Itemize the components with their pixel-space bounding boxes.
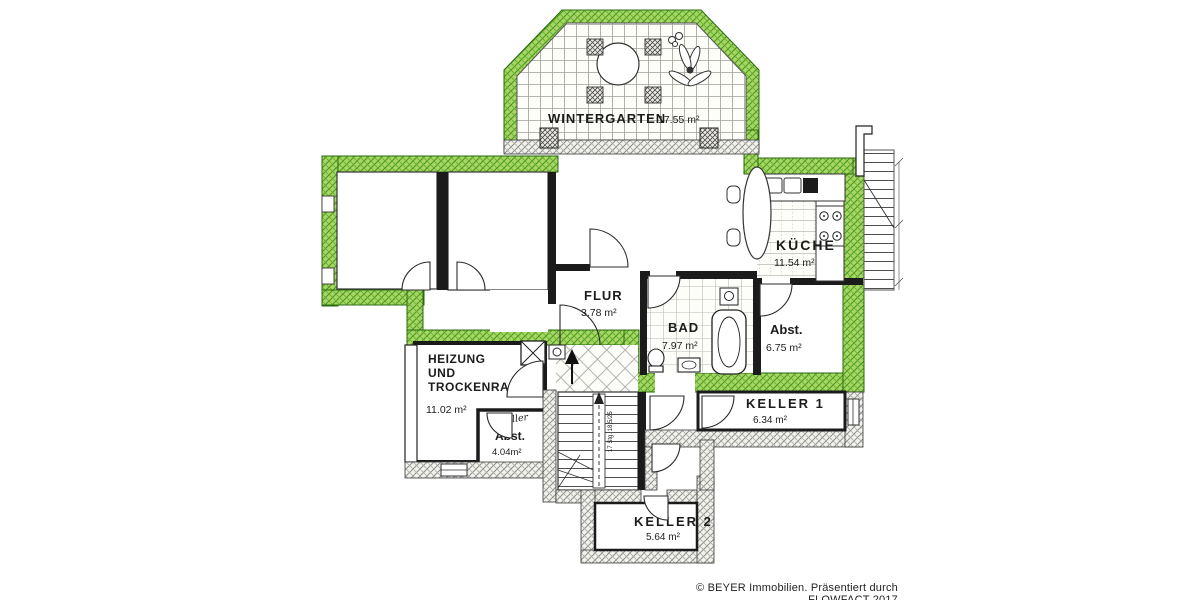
- door-corridor: [652, 444, 680, 472]
- window-notch: [322, 268, 334, 284]
- bad-area: 7.97 m²: [662, 340, 698, 352]
- door-living: [590, 229, 628, 267]
- room-right-wall: [548, 172, 556, 304]
- keller-abst-area: 4.04m²: [492, 447, 522, 458]
- flur-room: FLUR 3.78 m²: [556, 264, 623, 319]
- partition-wall: [437, 172, 448, 290]
- bad-label: BAD: [668, 320, 699, 335]
- door-abst: [760, 284, 792, 316]
- room-top-left: [322, 172, 556, 332]
- flur-top-wall: [556, 264, 590, 271]
- hall-floor: [556, 345, 638, 392]
- keller1-area: 6.34 m²: [753, 415, 788, 426]
- stair-annotation: 17 Stg. 18,5/25: [608, 411, 614, 452]
- drain-icon: [549, 345, 565, 359]
- sink-icon: [678, 358, 700, 372]
- abst-area: 6.75 m²: [766, 342, 802, 354]
- kueche-area: 11.54 m²: [774, 257, 815, 269]
- keller1-label: KELLER 1: [746, 396, 825, 411]
- window-keller1: [848, 399, 859, 425]
- dining-table: [743, 167, 771, 259]
- keller2-area: 5.64 m²: [646, 532, 681, 543]
- door-vestibule: [650, 396, 684, 430]
- chair: [727, 186, 740, 203]
- kueche-room: KÜCHE 11.54 m²: [727, 167, 845, 281]
- pillar-right: [700, 128, 718, 148]
- bad-top-wall-b: [676, 271, 760, 279]
- heizung-left-outer-wall: [405, 345, 417, 462]
- bathtub-icon: [712, 310, 746, 374]
- sink-basin: [784, 178, 801, 193]
- kueche-label: KÜCHE: [776, 237, 836, 253]
- dimension-marks: [895, 158, 903, 290]
- abst-label: Abst.: [770, 322, 803, 337]
- door-gap: [655, 373, 695, 394]
- flur-area: 3.78 m²: [581, 307, 617, 319]
- wintergarten-area: 17.55 m²: [658, 114, 700, 126]
- copyright-credit: © BEYER Immobilien. Präsentiert durch FL…: [648, 582, 898, 600]
- heizung-area: 11.02 m²: [426, 404, 467, 416]
- chair: [727, 229, 740, 246]
- toilet-icon: [648, 349, 664, 372]
- heizung-label-2: UND: [428, 366, 456, 380]
- wintergarten-label: WINTERGARTEN: [548, 111, 666, 126]
- floor-plan-drawing: WINTERGARTEN 17.55 m² FLUR 3.78 m²: [0, 0, 1200, 600]
- pillar-left: [540, 128, 558, 148]
- wintergarten-room: WINTERGARTEN 17.55 m²: [517, 23, 746, 140]
- keller2-label: KELLER 2: [634, 514, 713, 529]
- heizung-label-1: HEIZUNG: [428, 352, 486, 366]
- washer-icon: [720, 288, 738, 305]
- bad-left-wall: [640, 271, 647, 375]
- flur-label: FLUR: [584, 288, 623, 303]
- staircase: 17 Stg. 18,5/25: [558, 392, 646, 490]
- window-notch: [322, 196, 334, 212]
- floor-plan: WINTERGARTEN 17.55 m² FLUR 3.78 m²: [0, 0, 1200, 600]
- sink-drainer: [803, 178, 818, 193]
